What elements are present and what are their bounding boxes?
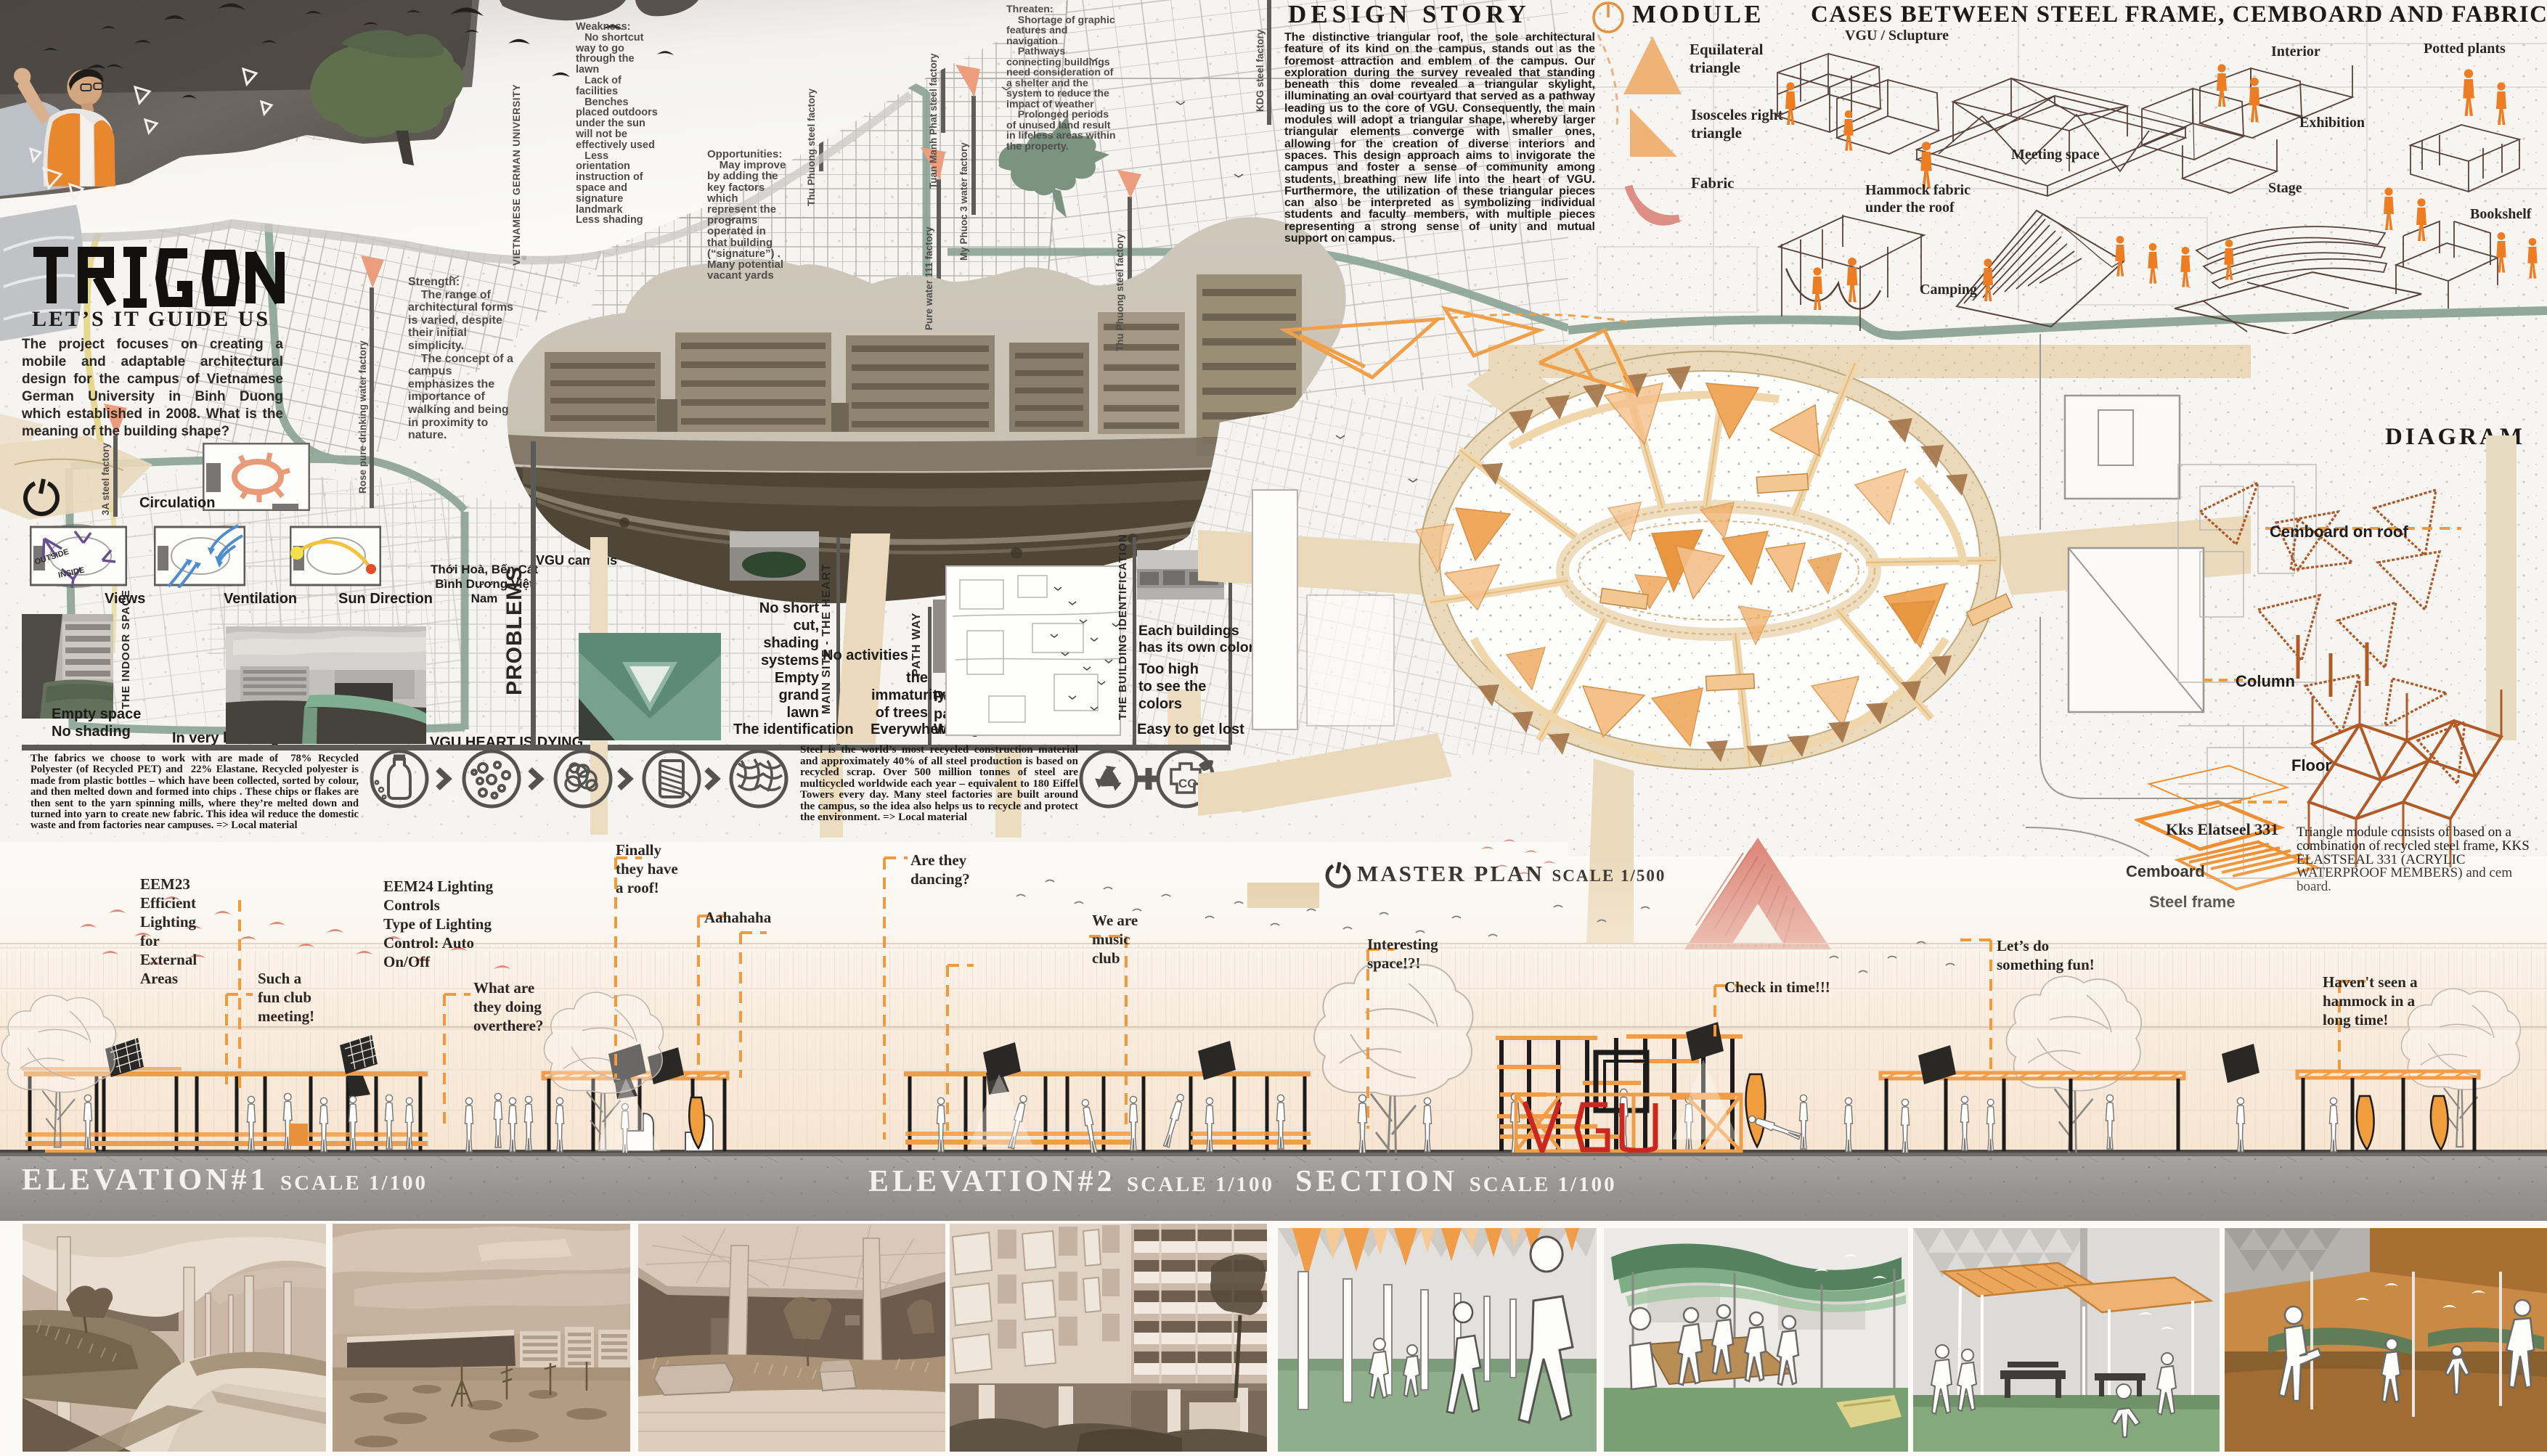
- svg-text:CO: CO: [1178, 777, 1197, 790]
